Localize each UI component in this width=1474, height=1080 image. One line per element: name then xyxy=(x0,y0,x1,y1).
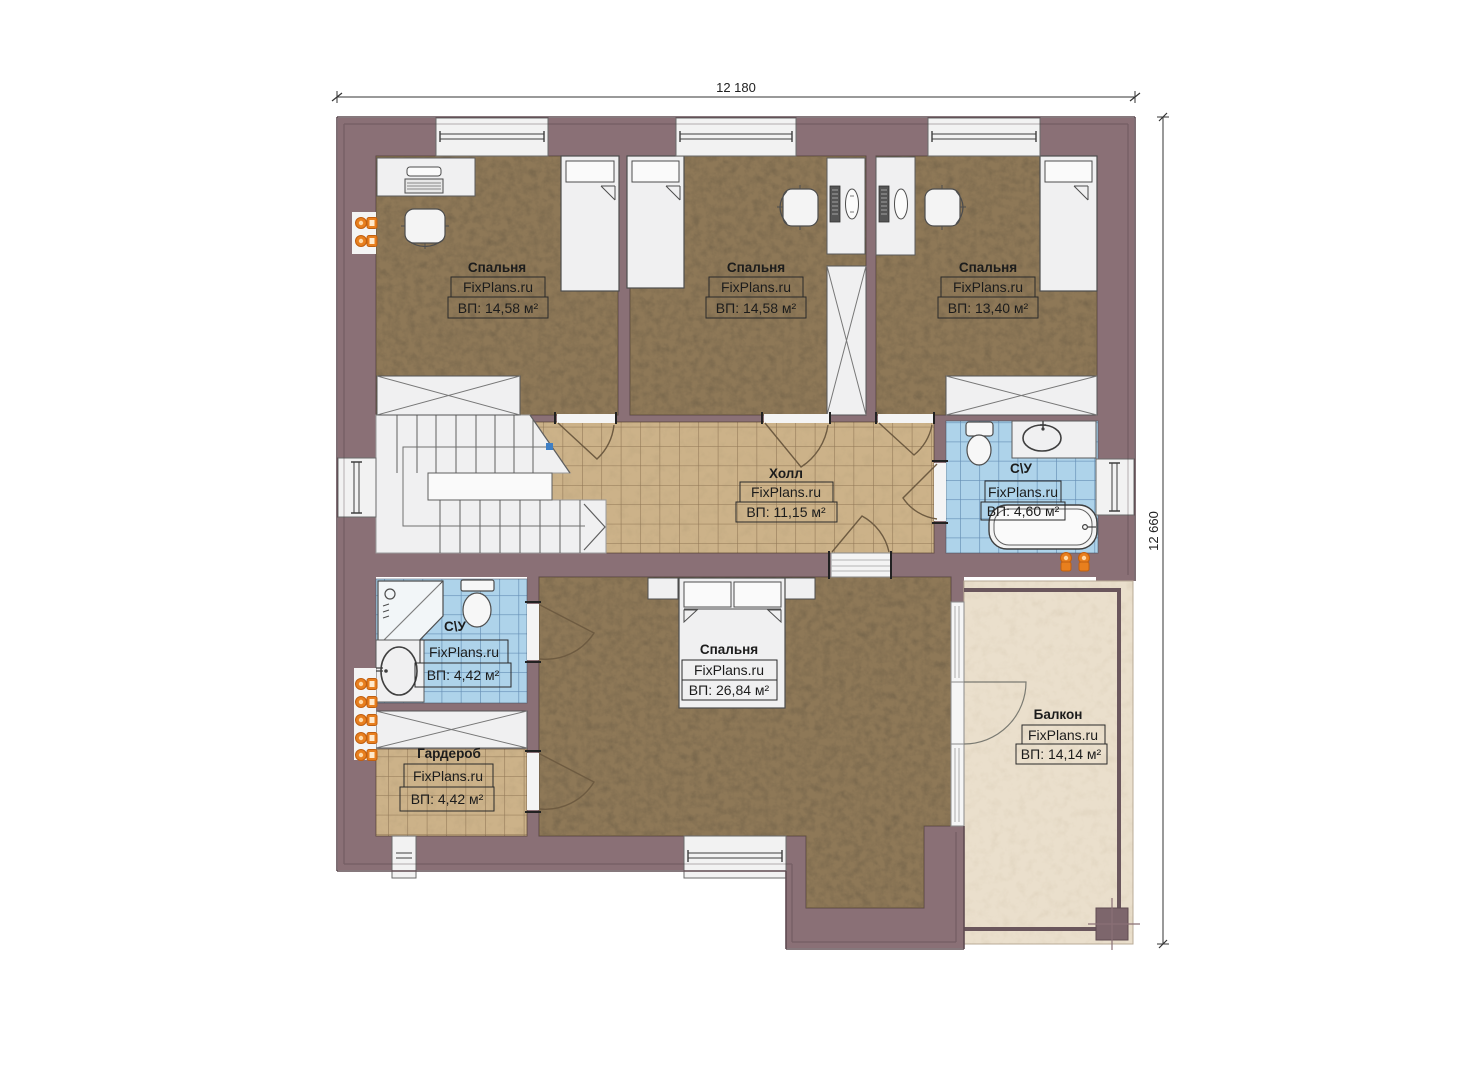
svg-text:ВП: 26,84 м²: ВП: 26,84 м² xyxy=(689,682,770,698)
svg-text:Балкон: Балкон xyxy=(1034,707,1083,722)
svg-text:FixPlans.ru: FixPlans.ru xyxy=(1028,727,1098,743)
svg-text:FixPlans.ru: FixPlans.ru xyxy=(721,279,791,295)
svg-text:ВП: 13,40 м²: ВП: 13,40 м² xyxy=(948,300,1029,316)
svg-text:Гардероб: Гардероб xyxy=(417,746,481,761)
svg-text:ВП: 11,15 м²: ВП: 11,15 м² xyxy=(746,504,826,520)
svg-text:С\У: С\У xyxy=(1010,461,1033,476)
svg-text:ВП: 14,14 м²: ВП: 14,14 м² xyxy=(1021,746,1102,762)
svg-text:Спальня: Спальня xyxy=(700,642,758,657)
svg-text:FixPlans.ru: FixPlans.ru xyxy=(751,484,821,500)
svg-text:ВП: 14,58 м²: ВП: 14,58 м² xyxy=(716,300,797,316)
svg-text:ВП: 4,42 м²: ВП: 4,42 м² xyxy=(427,667,500,683)
svg-text:Спальня: Спальня xyxy=(959,260,1017,275)
svg-text:12 660: 12 660 xyxy=(1146,511,1161,551)
svg-text:Спальня: Спальня xyxy=(727,260,785,275)
svg-text:FixPlans.ru: FixPlans.ru xyxy=(413,768,483,784)
svg-text:FixPlans.ru: FixPlans.ru xyxy=(953,279,1023,295)
svg-text:ВП: 4,60 м²: ВП: 4,60 м² xyxy=(987,503,1060,519)
svg-text:FixPlans.ru: FixPlans.ru xyxy=(429,644,499,660)
svg-text:С\У: С\У xyxy=(444,619,467,634)
svg-text:ВП: 4,42 м²: ВП: 4,42 м² xyxy=(411,791,484,807)
svg-text:12 180: 12 180 xyxy=(716,80,756,95)
svg-text:ВП: 14,58 м²: ВП: 14,58 м² xyxy=(458,300,539,316)
svg-text:FixPlans.ru: FixPlans.ru xyxy=(694,662,764,678)
svg-text:FixPlans.ru: FixPlans.ru xyxy=(463,279,533,295)
svg-text:Холл: Холл xyxy=(769,466,803,481)
svg-text:Спальня: Спальня xyxy=(468,260,526,275)
svg-text:FixPlans.ru: FixPlans.ru xyxy=(988,484,1058,500)
